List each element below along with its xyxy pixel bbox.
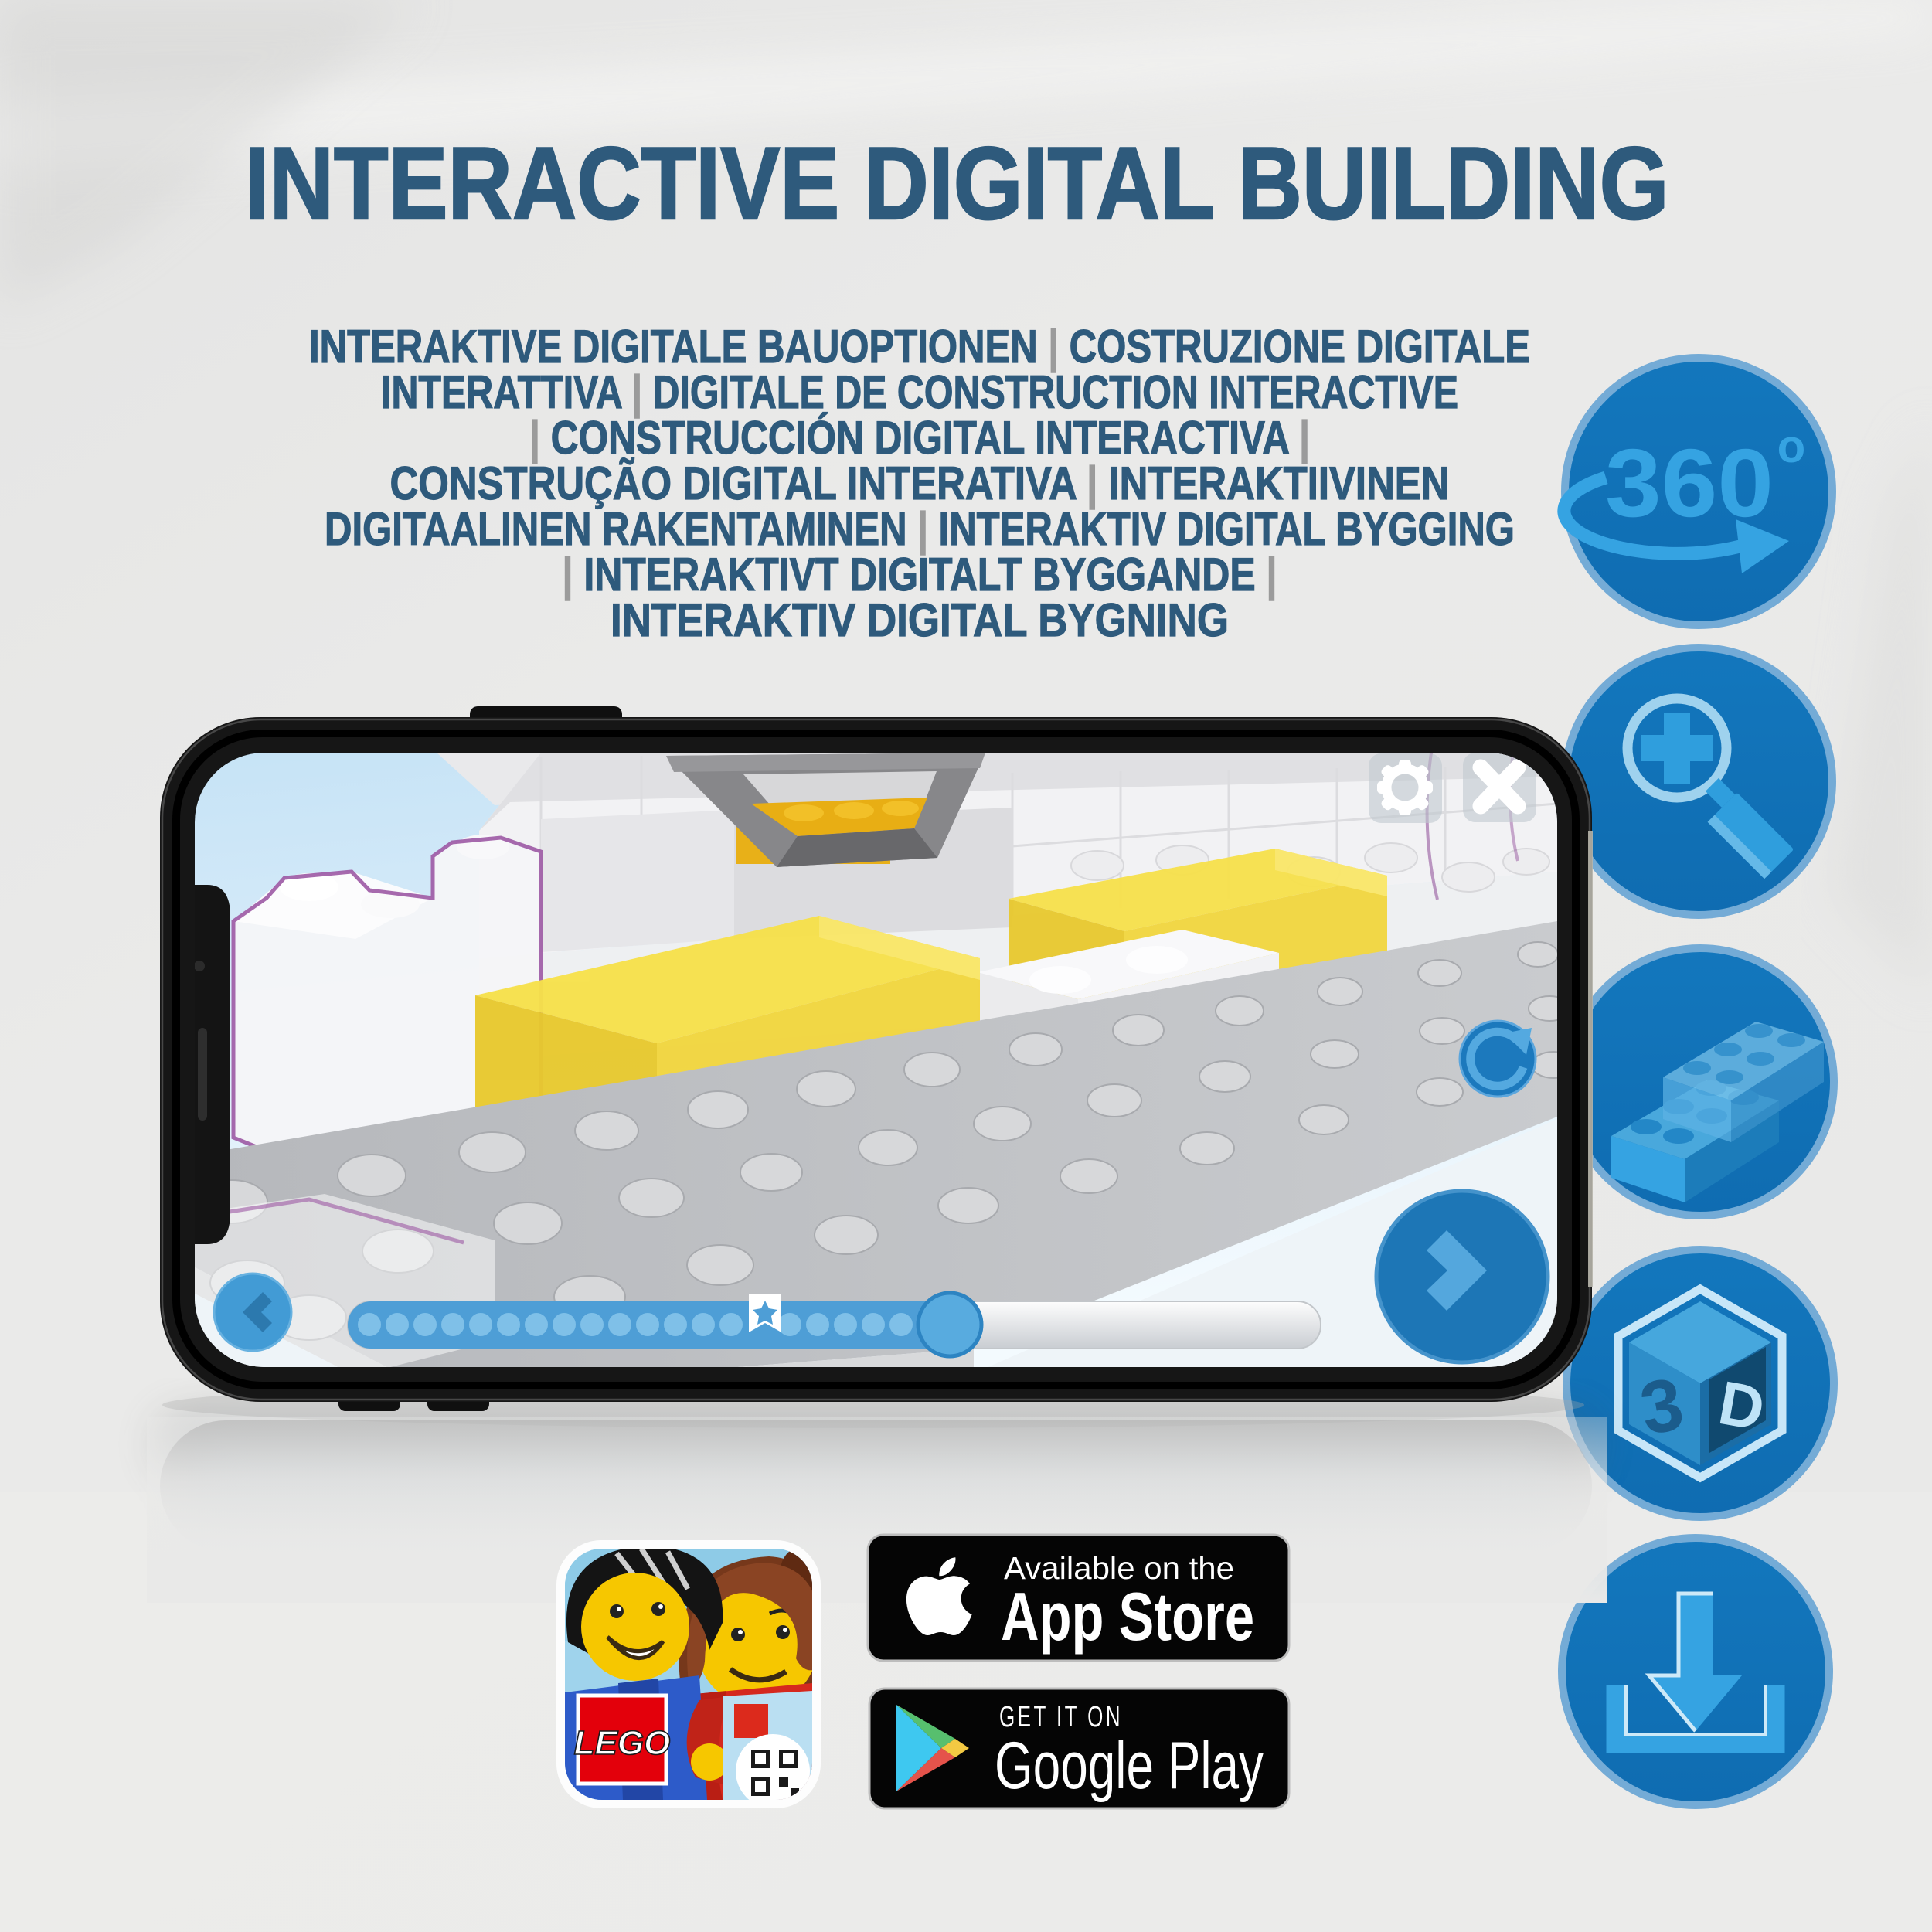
svg-text:INTERATTIVA | DIGITALE DE CONS: INTERATTIVA | DIGITALE DE CONSTRUCTION I…: [381, 366, 1458, 419]
svg-text:CONSTRUÇÃO DIGITAL INTERATIVA: CONSTRUÇÃO DIGITAL INTERATIVA | INTERAKT…: [390, 457, 1450, 510]
svg-text:INTERAKTIVE DIGITALE BAUOPTION: INTERAKTIVE DIGITALE BAUOPTIONEN | COSTR…: [309, 321, 1530, 373]
svg-text:360: 360: [1605, 430, 1774, 537]
svg-text:Google Play: Google Play: [995, 1729, 1264, 1803]
svg-text:INTERAKTIV DIGITAL BYGNING: INTERAKTIV DIGITAL BYGNING: [611, 594, 1229, 646]
svg-text:| CONSTRUCCIÓN DIGITAL INTERAC: | CONSTRUCCIÓN DIGITAL INTERACTIVA |: [529, 412, 1310, 464]
svg-text:DIGITAALINEN RAKENTAMINEN | IN: DIGITAALINEN RAKENTAMINEN | INTERAKTIV D…: [325, 503, 1515, 556]
svg-text:o: o: [1777, 420, 1806, 472]
svg-text:App Store: App Store: [1001, 1578, 1254, 1655]
svg-text:LEGO: LEGO: [574, 1724, 671, 1762]
svg-text:INTERACTIVE DIGITAL BUILDING: INTERACTIVE DIGITAL BUILDING: [245, 127, 1669, 241]
svg-text:| INTERAKTIVT DIGITALT BYGGAND: | INTERAKTIVT DIGITALT BYGGANDE |: [563, 549, 1277, 601]
